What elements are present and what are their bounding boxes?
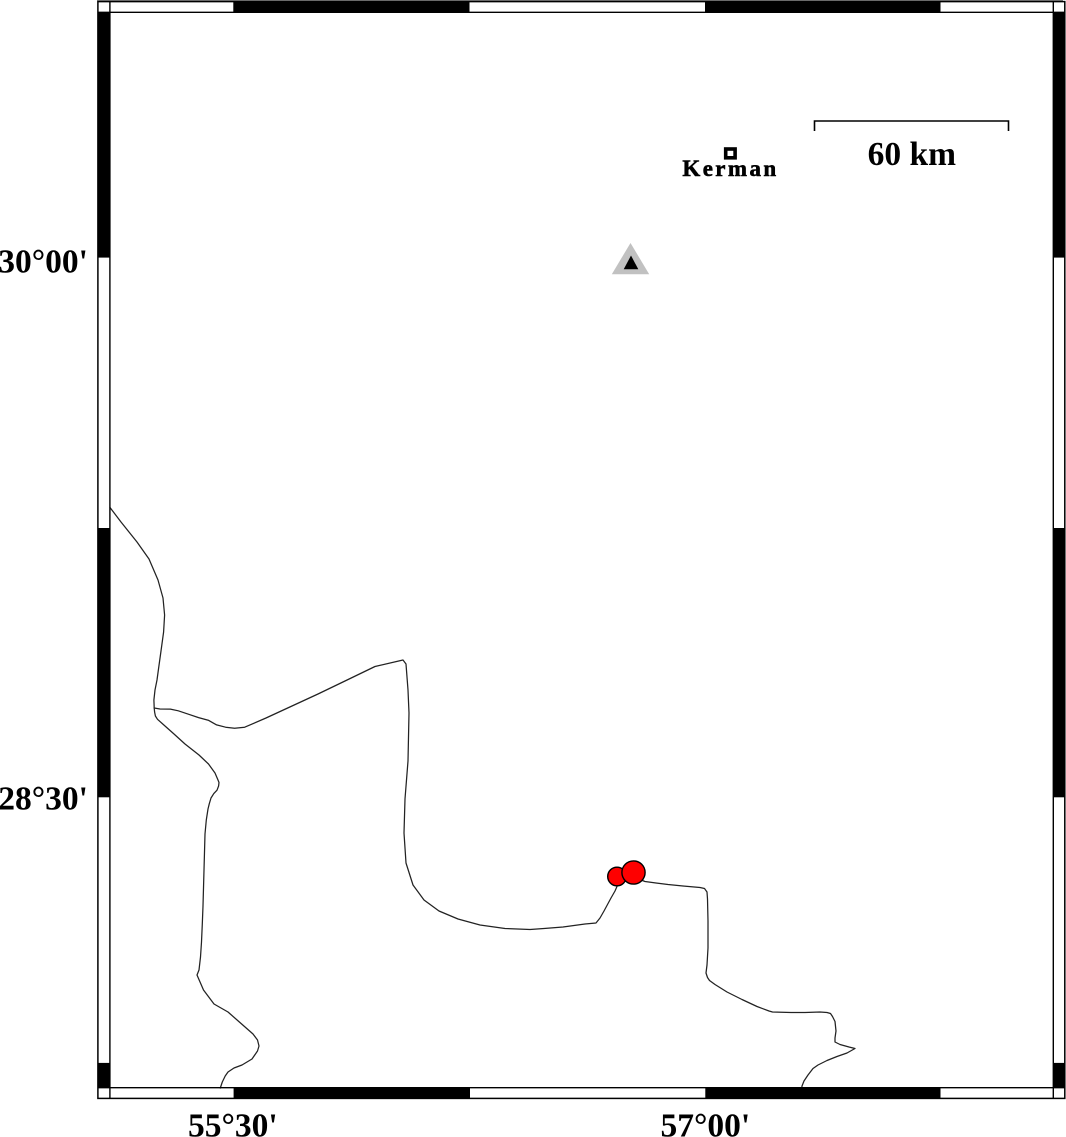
svg-text:55°30': 55°30' [188, 1108, 278, 1137]
svg-text:30°00': 30°00' [0, 244, 88, 281]
svg-text:57°00': 57°00' [660, 1108, 750, 1137]
svg-text:60 km: 60 km [868, 136, 957, 173]
svg-text:28°30': 28°30' [0, 781, 88, 818]
svg-text:Kerman: Kerman [682, 156, 778, 181]
